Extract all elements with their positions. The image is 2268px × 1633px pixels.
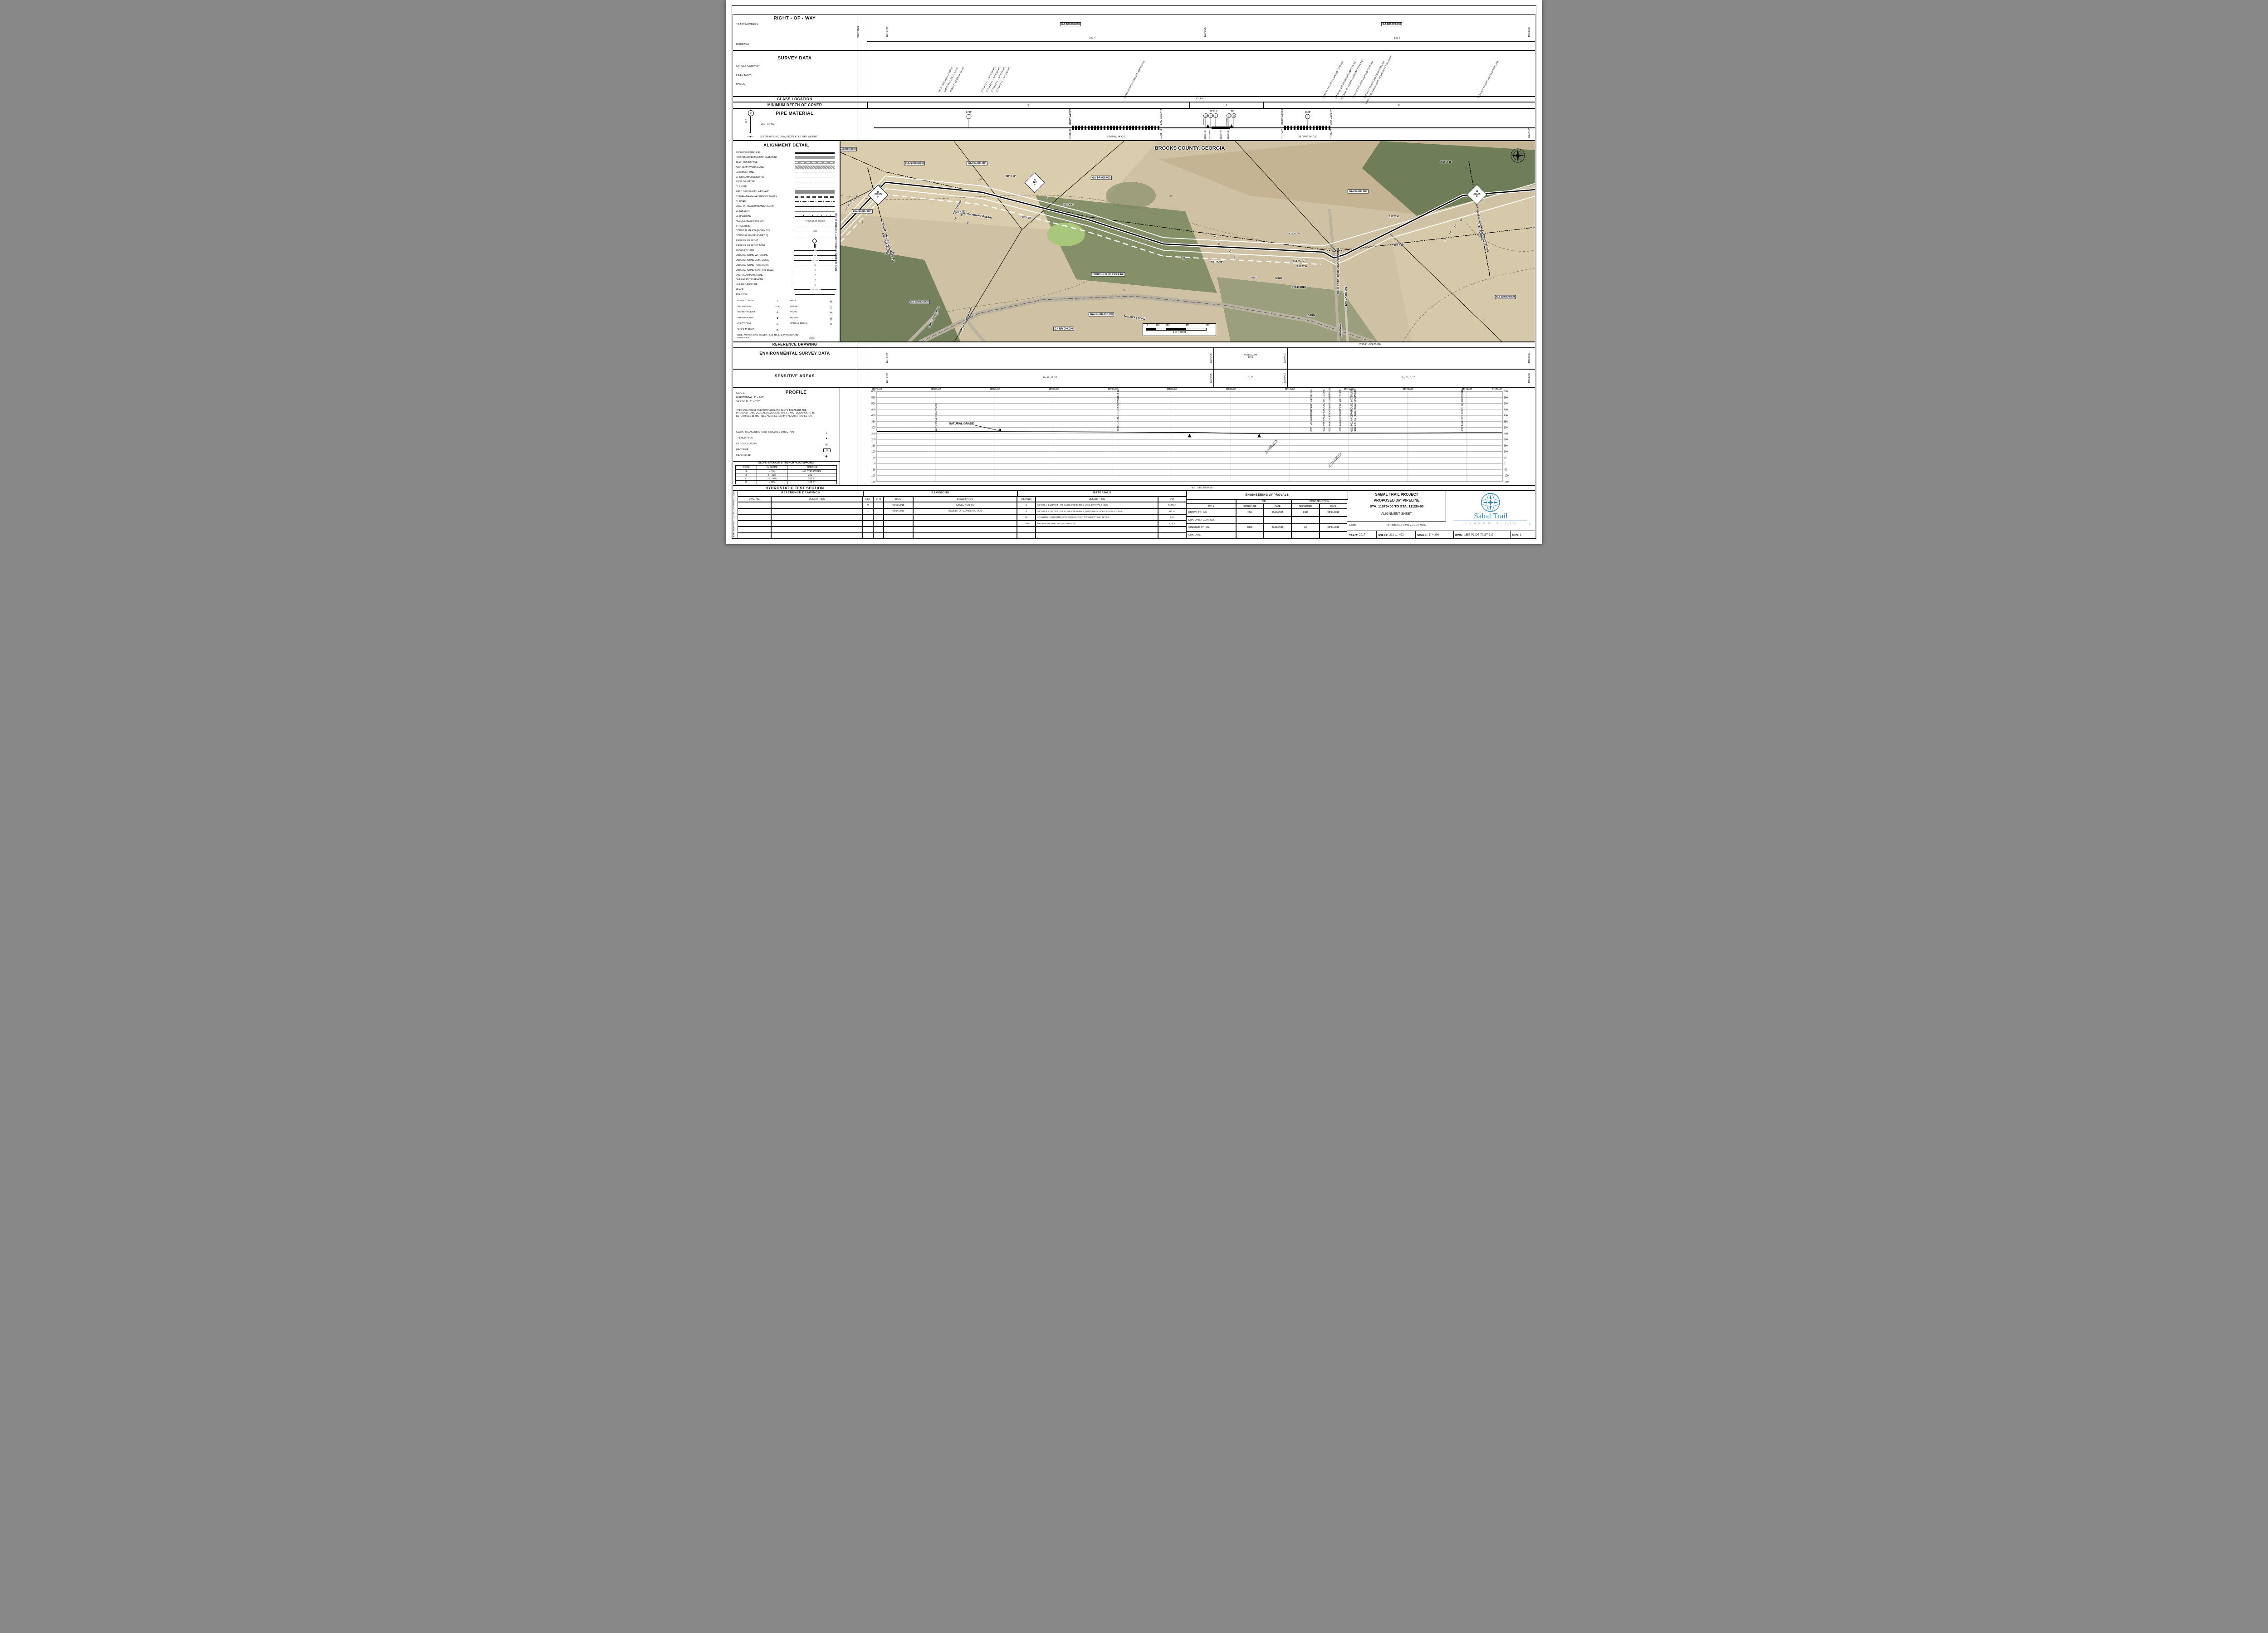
svg-text:-100: -100 [870, 475, 875, 478]
svg-text:300: 300 [1504, 427, 1508, 429]
svg-text:3740': 3740' [966, 111, 972, 114]
env-boundary-line [1213, 348, 1214, 387]
profile-chart: 6006005505505005004504504004003503503003… [867, 387, 1535, 486]
env-entry-line2: PSS [1244, 356, 1257, 359]
roddage-value: 189.4 [1089, 37, 1095, 39]
svg-text:11115+22 UNDERGROUND WATERLINE: 11115+22 UNDERGROUND WATERLINE [1350, 389, 1353, 431]
materials-cell: 3R [1017, 514, 1036, 521]
legend-symbol-label: UTILITY POLE [737, 322, 773, 325]
legend-item: FIELD DELINEATED WETLAND [736, 189, 836, 194]
svg-text:400: 400 [1504, 414, 1508, 417]
approvals-label: DRN. DATE: [1188, 519, 1202, 522]
legend-manholes-glyph: ⓂⒽ [809, 336, 815, 340]
svg-text:11114+32: 11114+32 [1227, 130, 1229, 139]
map-label: 2050' X 15' [1440, 161, 1452, 164]
profile-symbol-label: TRENCH PLUG [736, 437, 809, 439]
svg-text:11080+00: 11080+00 [931, 388, 941, 391]
svg-text:250: 250 [1504, 433, 1508, 435]
strip-cell: SHEET:212OF492 [1376, 531, 1404, 539]
legend-item: CL STREAM/CREEK/DITCH [736, 175, 836, 180]
materials-cell: 81 EA [1158, 521, 1186, 527]
row-title-class-location: CLASS LOCATION [733, 97, 857, 101]
legend-manholes-label: ELEC., WATER, SAN. SEWER, GAS TELE. & ST… [737, 334, 805, 339]
hydro-value: TEST SECTION 19 [867, 487, 1535, 489]
map-label: GA-BR-009.000 [1348, 190, 1369, 194]
svg-text:100: 100 [871, 451, 875, 453]
logo-sub: T R A N S M I S S I O N [1446, 522, 1535, 525]
profile-header-box: PROFILESCALE:HORIZONTAL: 1" = 200'VERTIC… [733, 387, 840, 486]
approvals-cell: DRS [1236, 524, 1264, 531]
pipe-weight-note: SET ON WEIGHT, GPW, GEOTEXTILE PIPE WEIG… [760, 136, 855, 138]
tract-box: GA-BR-009.000 [1381, 22, 1402, 26]
materials-cell [1017, 533, 1036, 539]
svg-text:11111+82 UNDERGROUND WATERLINE: 11111+82 UNDERGROUND WATERLINE [1310, 389, 1313, 431]
legend-item: ACCESS ROAD (PAR/TAR)PAR/TAR-ST-CO-000 [736, 219, 836, 224]
row-title-survey-data: SURVEY DATA [733, 56, 857, 61]
map-label: GA-BR-008.000 [1091, 176, 1112, 180]
approvals-label: DRAWN BY: [1188, 511, 1202, 514]
svg-text:50: 50 [1504, 457, 1506, 459]
approvals-cell: 06/29/2015 [1264, 524, 1291, 531]
legend-item: PROPOSED PIPELINE [736, 150, 836, 155]
approvals-cell: FSR [1291, 509, 1320, 517]
revisions-cell [913, 514, 1017, 521]
map-label: 270 [860, 220, 864, 224]
ref-dwg-cell [771, 514, 863, 521]
scalebar-tick: 600 [1204, 324, 1211, 327]
aerial-photo-date-note: DATE OF AERIAL PHOTOGRAPHY: OCTOBER 10, … [835, 213, 838, 271]
svg-text:150: 150 [1504, 444, 1508, 447]
pipe-id-line [750, 116, 751, 132]
approvals-cell: 03/14/2016 [1320, 509, 1347, 517]
legend-item-symbol: PAR/TAR-ST-CO-000 [794, 219, 836, 224]
sens-boundary-station: 11101+95 [1210, 373, 1212, 383]
revisions-cell [873, 502, 884, 508]
map-label: 35' [1046, 195, 1048, 199]
map-label: 230 [1122, 289, 1126, 292]
pipe-fitting-note: - 3R, FITTING [760, 123, 775, 126]
scalebar-note: 1 in = 200 ft [1143, 331, 1216, 334]
reference-drawing-value: 1657-PL-DG-28160 [1359, 343, 1381, 346]
legend-symbol-glyph: ⊤ [773, 300, 782, 303]
strip-label: YEAR: [1349, 534, 1358, 537]
survey-field-label: FIELD BOOK: [736, 74, 752, 77]
map-label: 10' [1233, 256, 1237, 260]
revisions-cell: 03/14/2016 [884, 508, 913, 515]
map-label: 200' X 50' [1389, 215, 1399, 218]
svg-text:200: 200 [871, 439, 875, 441]
spacing-table-title: SLOPE BREAKER & TRENCH PLUG SPACING [733, 461, 840, 464]
map-label: GA-BR-008.000 [904, 161, 925, 166]
legend-symbol-glyph: ⊠ [773, 328, 782, 331]
depth-cell: 5' [867, 102, 1190, 108]
legend-item-label: CL RAILROAD [736, 215, 794, 218]
legend-item-symbol [794, 155, 836, 160]
depth-cell: 3' [1190, 102, 1263, 108]
alignment-sheet: RIGHT - OF - WAYTRACT NUMBERSRODDAGECROS… [726, 0, 1542, 544]
svg-text:11115+51 CL FIELD ROAD, EQUIPM: 11115+51 CL FIELD ROAD, EQUIPMENT CROSSI… [1354, 387, 1357, 431]
legend-symbol-label: WELL [790, 300, 826, 302]
approvals-cell [1320, 517, 1347, 524]
strip-label: SCALE: [1417, 534, 1427, 537]
legend-item-symbol [794, 214, 836, 219]
legend-item-symbol [794, 234, 836, 238]
svg-text:59': 59' [1231, 110, 1234, 113]
approvals-rowlabel: DRN. DATE: 01/04/2016 [1186, 517, 1236, 524]
map-label: BARN [1308, 314, 1315, 317]
profile-title: PROFILE [760, 390, 832, 395]
map-label: FIELD ROAD, EQUIPMENT CROSSING [1337, 248, 1340, 294]
legend-item-symbol [794, 160, 836, 165]
svg-text:END WEIGHTS: END WEIGHTS [1160, 108, 1163, 125]
materials-cell [1036, 526, 1158, 533]
profile-h-scale: HORIZONTAL: 1" = 200' [736, 396, 764, 399]
map-label: 200' X 25' [852, 194, 860, 204]
legend-item: UNDERGROUND POWERLINEE [736, 263, 836, 268]
svg-text:300: 300 [871, 427, 875, 429]
env-boundary-line [1287, 348, 1288, 387]
ref-dwg-cell [738, 521, 771, 527]
weight-glyph: —■— [747, 136, 753, 138]
legend-item-symbol: T [794, 278, 836, 282]
map-labels: GA-BR-006.000GA-BR-008.000GA-BR-008.005G… [841, 141, 1535, 342]
map-label: 40' [966, 221, 970, 225]
profile-symbol-glyph: ▲ [823, 437, 830, 440]
svg-text:11101+37: 11101+37 [1069, 129, 1072, 139]
ref-dwg-cell [771, 533, 863, 539]
project-name: SABAL TRAIL PROJECT [1349, 492, 1444, 497]
legend-item-label: TOP / TOE [736, 293, 794, 296]
legend-item-symbol [794, 170, 836, 175]
legend-item: CL CULVERT [736, 209, 836, 214]
svg-text:END WEIGHTS: END WEIGHTS [1330, 108, 1333, 125]
materials-cell [1158, 526, 1186, 533]
legend-item-label: ADD. TEMP. WORKSPACE [736, 166, 794, 169]
svg-text:3R: 3R [1204, 115, 1207, 117]
svg-text:3645111: 3645111 [1202, 117, 1205, 126]
scalebar-tick: 0 [1144, 324, 1151, 327]
svg-text:11128+00: 11128+00 [1492, 388, 1503, 391]
profile-symbol-glyph: ◆ [823, 454, 830, 458]
profile-symbol-glyph: Ⓣ [823, 443, 830, 447]
strip-value: 1" = 200' [1429, 534, 1439, 536]
map-label: 200' X 15' [1394, 244, 1404, 247]
legend-symbol-label: TRANS. TOWER [737, 300, 773, 302]
svg-text:450: 450 [871, 409, 875, 411]
revisions-cell [884, 521, 913, 527]
survey-field-label: PAGES: [736, 83, 745, 86]
milepost-text: M210P [1028, 176, 1041, 190]
materials-cell: 4 [1017, 508, 1036, 515]
svg-text:BEGIN WEIGHTS: BEGIN WEIGHTS [1281, 108, 1284, 125]
svg-text:11090+00: 11090+00 [1049, 388, 1059, 391]
svg-text:3632111: 3632111 [1226, 117, 1228, 126]
legend-item-symbol: // [794, 283, 836, 287]
materials-cell: GEOTEXTILE PIPE WEIGHT, 9000 LBS [1036, 521, 1158, 527]
title-block: SABAL TRAIL PROJECTPROPOSED 36" PIPELINE… [1347, 491, 1535, 539]
legend-item-label: CL STREAM/CREEK/DITCH [736, 176, 794, 179]
materials-cell [1036, 533, 1158, 539]
sens-edge-station: 11075+00 [886, 373, 889, 383]
depth-cell: 5' [1263, 102, 1535, 108]
svg-text:50: 50 [873, 457, 875, 459]
logo-rule [1454, 521, 1527, 521]
revisions-cell: 0 [863, 502, 873, 508]
svg-text:11114+26 UNDERGROUND WATERLINE: 11114+26 UNDERGROUND WATERLINE [1339, 389, 1342, 431]
legend-item-label: ACCESS ROAD (PAR/TAR) [736, 220, 794, 223]
legend-item-label: OVERHEAD POWERLINE [736, 274, 794, 277]
svg-text:11122+78: 11122+78 [1330, 129, 1333, 139]
milepost-text: M209.75P [871, 188, 885, 202]
legend-item-label: CL ROAD [736, 200, 794, 203]
legend-symbol-label: GUY ANCHOR [737, 306, 773, 308]
legend-item: EDGE OF ROAD/PAVEMENT/CURB [736, 204, 836, 209]
legend-item-label: CL CULVERT [736, 210, 794, 213]
legend-item: ADD. TEMP. WORKSPACE [736, 165, 836, 170]
bottom-tables: REFERENCE DRAWINGSDWG. NO.DESCRIPTIONDoc… [733, 491, 1535, 539]
legend-item: STRUCTURE [736, 224, 836, 229]
matchline-note: SEE SHT. 1657-PL-DG-70197-211STA - 11075… [878, 221, 894, 263]
legend-item: OVERHEAD TELEPHONET [736, 278, 836, 283]
revisions-header: DESCRIPTION [913, 496, 1017, 502]
legend-item: CL ROAD [736, 199, 836, 204]
approvals-cell [1264, 517, 1291, 524]
map-label: 250 [1463, 166, 1468, 171]
svg-text:550: 550 [871, 396, 875, 399]
approvals-label-value: GIE [1203, 511, 1207, 514]
legend-item-symbol: UCOM [794, 258, 836, 263]
map-label: 50' [1183, 257, 1186, 260]
legend-item-label: EASEMENT LINE [736, 171, 794, 174]
roddage-line [867, 41, 1535, 42]
map-label: W3TRC084 [1210, 261, 1223, 263]
row-station: 11101+25 [1204, 27, 1207, 37]
legend-item: PROPERTY LINEP [736, 248, 836, 253]
legend-item-symbol [794, 175, 836, 180]
row-station: 11128+00 [1528, 27, 1531, 37]
strip-cell: SCALE:1" = 200' [1415, 531, 1440, 539]
scalebar-tick: 100 [1154, 324, 1161, 327]
svg-text:400: 400 [871, 414, 875, 417]
legend-symbol-label: VALVE [790, 311, 826, 313]
lower-crossing-col [857, 342, 867, 491]
project-line4: ALIGNMENT SHEET [1349, 512, 1444, 516]
strip-cell: REV.1 [1510, 531, 1521, 539]
legend-symbol-glyph: ⊙ [773, 322, 782, 326]
milepost-text: M210.76P [1470, 188, 1484, 201]
revisions-cell [884, 533, 913, 539]
svg-text:11075+00: 11075+00 [872, 388, 882, 391]
svg-text:53 GPW, 14' C-C: 53 GPW, 14' C-C [1107, 136, 1125, 138]
svg-text:-150: -150 [1504, 481, 1509, 483]
svg-text:1: 1 [1307, 116, 1309, 118]
legend-item: STREAM/DRAIN/WATERBODY BNDRY [736, 194, 836, 199]
svg-text:0: 0 [1504, 463, 1505, 465]
svg-text:Ⓣ 11113+36 TSF: Ⓣ 11113+36 TSF [1327, 451, 1342, 468]
approvals-rowlabel: DRAWN BY: GIE [1186, 509, 1236, 517]
svg-text:1: 1 [968, 116, 970, 118]
class-location-value: CLASS 1 [867, 97, 1535, 100]
legend-item-symbol [794, 209, 836, 214]
legend-item-symbol [794, 180, 836, 184]
strip-value: 2017 [1359, 534, 1365, 536]
row-station: 11075+00 [886, 27, 889, 37]
map-label: SHED [1275, 277, 1282, 280]
approvals-header: DATE [1264, 504, 1291, 509]
legend-item-symbol [794, 200, 836, 204]
legend-item-symbol [794, 185, 836, 189]
revisions-cell [863, 521, 873, 527]
logo-name: Sabal Trail [1446, 512, 1535, 521]
ref-dwg-cell [738, 514, 771, 521]
env-edge-station: 11128+00 [1528, 353, 1531, 363]
profile-symbol-label: SLOPE BREAKERS/ARROW INDICATES DIRECTION [736, 431, 809, 434]
svg-text:11120+00: 11120+00 [1403, 388, 1413, 391]
map-label: 0.42 AC. +/- [1293, 260, 1305, 263]
ref-dwg-cell [771, 502, 863, 508]
svg-text:550: 550 [1504, 396, 1508, 399]
approvals-cell [1320, 531, 1347, 539]
legend-box: ALIGNMENT DETAILPROPOSED PIPELINEPROPOSE… [733, 141, 840, 342]
profile-note: THE LOCATION OF TRENCH PLUGS AND SLOPE B… [736, 409, 818, 418]
env-edge-station: 11075+00 [886, 353, 889, 363]
revisions-cell [873, 526, 884, 533]
revisions-header: DRN [873, 496, 884, 502]
approvals-title: ENGINEERING APPROVALS [1186, 491, 1348, 500]
scalebar-tick: 400 [1184, 324, 1191, 327]
survey-field-label: SURVEY COMPANY: [736, 65, 760, 68]
project-line2: PROPOSED 36" PIPELINE [1349, 498, 1444, 502]
revisions-cell [863, 533, 873, 539]
map-label: MAGNOLIA CHURCH RD [958, 307, 973, 335]
milepost-diamond: M210P [1024, 172, 1045, 193]
row-title-hydrostatic: HYDROSTATIC TEST SECTION [733, 486, 857, 490]
pipe-id-label: ID # [745, 119, 748, 123]
svg-text:BEGIN WEIGHTS: BEGIN WEIGHTS [1069, 108, 1072, 125]
legend-item-symbol [794, 244, 836, 248]
revisions-cell [873, 521, 884, 527]
map-label: 1462' X 25' [1020, 215, 1031, 220]
approvals-cell [1236, 517, 1264, 524]
logo-sm: SM [1529, 523, 1531, 525]
map-label: GA-BR-009.000 [1495, 295, 1516, 299]
sheet-total: 492 [1399, 534, 1404, 536]
profile-symbol-label: RECTIFIER [736, 448, 809, 451]
ref-dwg-cell [738, 508, 771, 515]
map-label: POLE SHED [1292, 286, 1306, 289]
svg-text:200: 200 [1504, 439, 1508, 441]
ref-dwg-h1: DESCRIPTION [771, 496, 863, 502]
svg-text:350: 350 [871, 420, 875, 423]
svg-text:11079+99 CL FIELD ROAD: 11079+99 CL FIELD ROAD [935, 403, 938, 431]
legend-symbol-label: SPREAD BREAK [790, 322, 826, 325]
legend-item-label: EDGE OF ROAD/PAVEMENT/CURB [736, 205, 794, 208]
legend-item-label: PIPELINE MILEPOST 10TH [736, 244, 794, 247]
revisions-cell: 1 [863, 508, 873, 515]
legend-symbol-label: SEPTIC [790, 306, 826, 308]
materials-header: ITEM NO. [1017, 496, 1036, 502]
tract-box: GA-BR-008.000 [1060, 22, 1081, 26]
map-label: 40' [1460, 218, 1464, 222]
legend-item-symbol [794, 165, 836, 170]
scalebar-tick: 200 [1164, 324, 1171, 327]
milepost-diamond: M210.76P [1466, 184, 1487, 205]
ref-dwg-cell [771, 521, 863, 527]
map-label: SHED [1250, 277, 1257, 279]
revisions-cell [913, 526, 1017, 533]
legend-item: FENCEx — x — x [736, 287, 836, 292]
svg-text:150: 150 [871, 444, 875, 447]
approvals-header: SIGNATURE [1236, 504, 1264, 509]
legend-item: UNDERGROUND SANITARY SEWERS [736, 268, 836, 273]
legend-item-label: VERIFIED PIPELINE [736, 283, 794, 286]
approvals-header: SIGNATURE [1291, 504, 1320, 509]
revisions-cell [873, 508, 884, 515]
ref-dwg-h0: DWG. NO. [738, 496, 771, 502]
row-title-sensitive: SENSITIVE AREAS [733, 374, 857, 378]
tract-numbers-label: TRACT NUMBERS [736, 23, 758, 26]
revisions-cell [913, 521, 1017, 527]
legend-item-symbol [794, 239, 836, 243]
map-label: GA-BR-006.000 [840, 147, 857, 151]
materials-cell: 3R ELBOW, HIGH STRENGTH WROUGHT BUTT-WEL… [1036, 514, 1158, 521]
legend-item-label: OVERHEAD TELEPHONE [736, 278, 794, 281]
svg-text:11108+71: 11108+71 [1160, 129, 1163, 139]
svg-text:11113+36 10" KINDER MORGAN PIP: 11113+36 10" KINDER MORGAN PIPELINE (4.1… [1329, 387, 1331, 431]
legend-item-label: STRUCTURE [736, 225, 794, 228]
svg-text:11128+00: 11128+00 [1528, 128, 1530, 138]
materials-cell: 5187 LF [1158, 502, 1186, 508]
map-label: 10' [960, 213, 964, 217]
header-band: RIGHT - OF - WAYTRACT NUMBERSRODDAGECROS… [733, 14, 1535, 141]
legend-symbol-glyph: Ⓦ [826, 300, 836, 304]
legend-item: PROPOSED PERMANENT EASEMENT [736, 155, 836, 160]
svg-text:11112+86 UNDERGROUND WATERLINE: 11112+86 UNDERGROUND WATERLINE [1323, 389, 1325, 431]
map-county-title: BROOKS COUNTY, GEORGIA [1122, 146, 1258, 151]
revisions-cell [884, 526, 913, 533]
approvals-label: CHECKED BY: [1188, 526, 1204, 529]
map-label: 260 [978, 178, 982, 181]
strip-value: 1657-PL-DG-70197-212 [1464, 534, 1493, 536]
legend-item-symbol: P [794, 273, 836, 278]
svg-text:0: 0 [874, 463, 875, 465]
legend-item: TOP / TOE [736, 292, 836, 297]
legend-item: EASEMENT LINE [736, 170, 836, 175]
legend-item-symbol [794, 151, 836, 155]
approvals-label-value: 01/04/2016 [1203, 519, 1215, 522]
map-label: GA-BR-006.000 [909, 300, 930, 304]
materials-cell: 113 LF [1158, 508, 1186, 515]
trench-plug-glyph: ▲ [749, 131, 752, 134]
svg-text:350: 350 [1504, 420, 1508, 423]
ref-dwg-cell [738, 533, 771, 539]
revisions-cell [863, 526, 873, 533]
map-label: 0.31 AC. +/- [1289, 233, 1301, 235]
legend-item: CONTOUR MINOR (EVERY 2') [736, 234, 836, 239]
map-label: GA-BR-006.000 [1053, 327, 1074, 331]
map-label: LONE CHURCH RD [929, 306, 941, 328]
map-label: 25' [954, 217, 958, 221]
svg-text:28 GPW, 14' C-C: 28 GPW, 14' C-C [1298, 136, 1317, 138]
approvals-header: DATE [1320, 504, 1347, 509]
ref-dwg-cell [738, 526, 771, 533]
svg-text:-50: -50 [1504, 468, 1507, 471]
svg-text:11085+00: 11085+00 [990, 388, 1000, 391]
map-label: GA-BR-007.005 [852, 210, 873, 214]
revisions-cell: 06/29/2015 [884, 502, 913, 508]
roddage-label: RODDAGE [736, 43, 749, 46]
map-label: GA-BR-004.015.RC [1089, 312, 1114, 317]
